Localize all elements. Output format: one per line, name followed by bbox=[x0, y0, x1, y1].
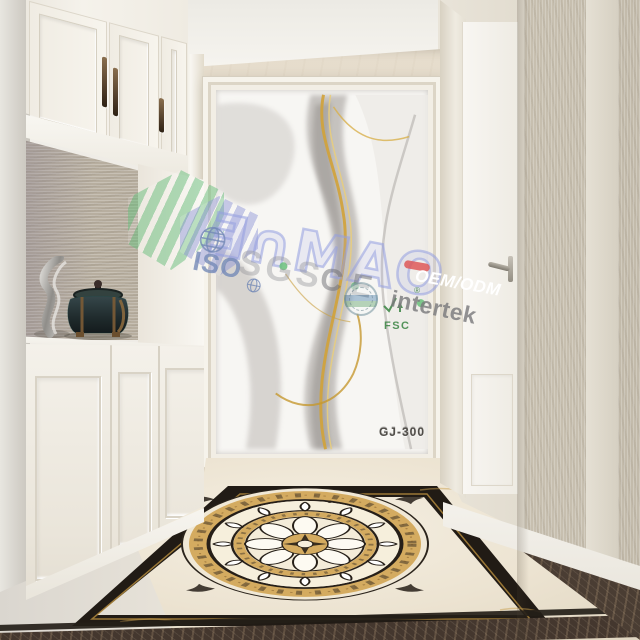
product-code-label: GJ-300 bbox=[379, 425, 425, 439]
room-photo: GJ-300 bbox=[0, 0, 640, 640]
lower-cabinet-panel bbox=[118, 372, 151, 547]
cabinet-handle bbox=[102, 56, 107, 107]
abstract-art-graphic bbox=[216, 90, 428, 454]
abstract-art-panel bbox=[216, 90, 428, 454]
cabinet-handle bbox=[113, 67, 118, 116]
door-edge-shadow bbox=[517, 0, 529, 640]
lower-cabinet-panel bbox=[35, 376, 101, 581]
decor-censer-box bbox=[60, 280, 136, 340]
upper-cabinet-door bbox=[161, 36, 187, 168]
niche-side-wall bbox=[138, 148, 204, 348]
art-panel-frame: GJ-300 bbox=[202, 76, 442, 468]
cabinet-handle bbox=[159, 98, 164, 133]
floor-medallion bbox=[180, 487, 430, 601]
